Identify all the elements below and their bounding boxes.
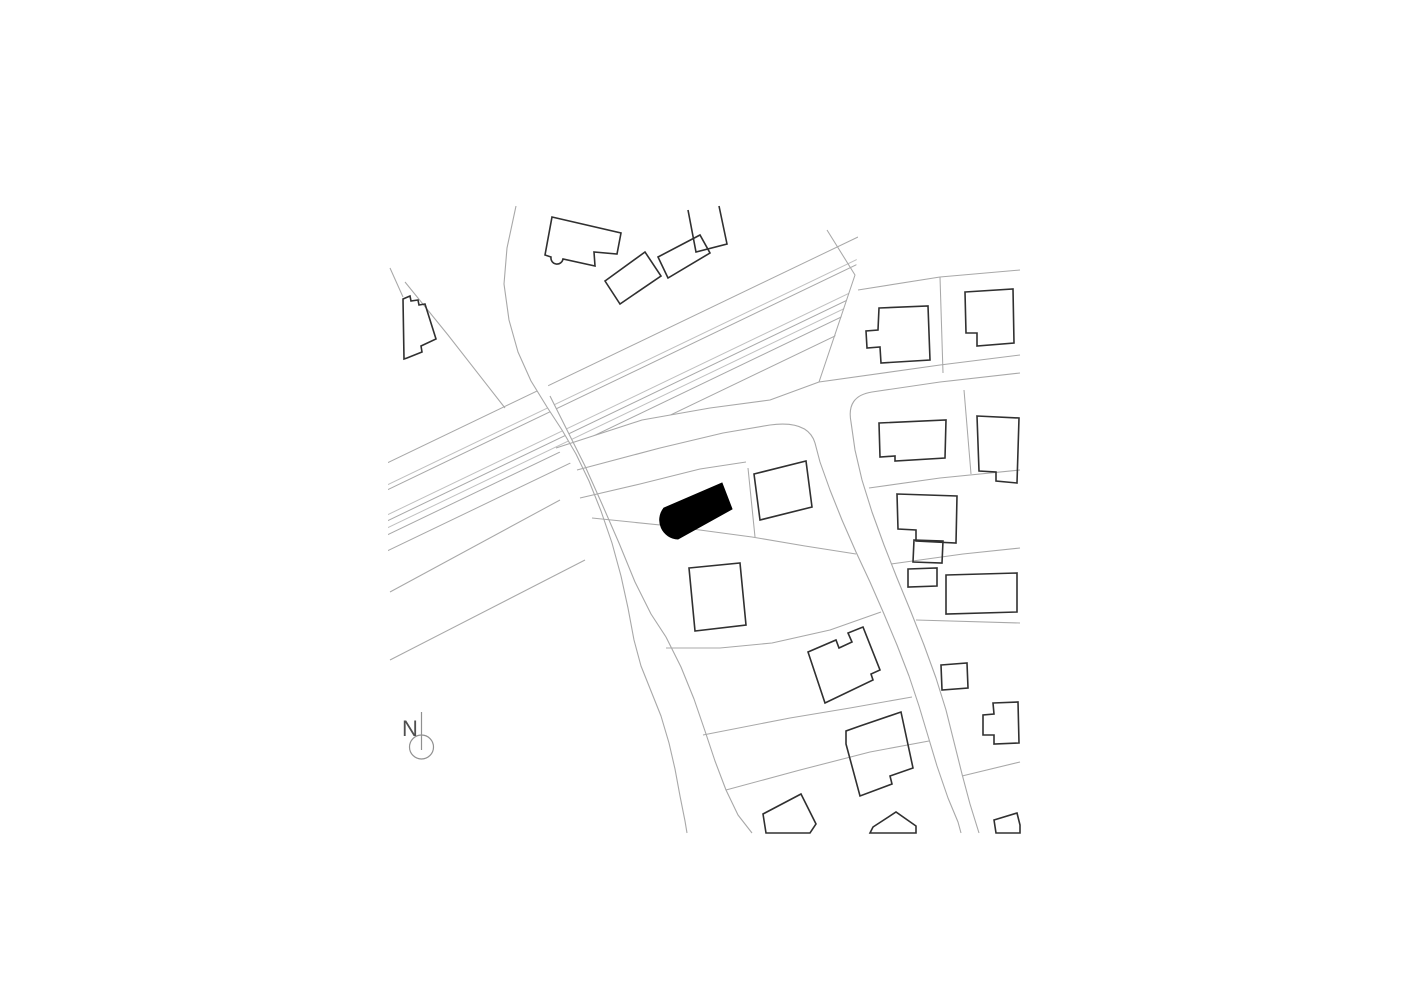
building-center-square-2 [689, 563, 746, 631]
parcel-boundary-line [869, 470, 1020, 488]
building-nw-rect-2 [658, 235, 710, 278]
parcel-boundary-line [891, 548, 1020, 564]
parcel-boundary-line [858, 270, 1020, 290]
site-plan: N [0, 0, 1415, 1000]
building-e-l-shape [897, 494, 957, 543]
parcel-boundary-line [962, 762, 1020, 776]
building-e-1 [879, 420, 946, 461]
parcel-boundary-line [390, 560, 585, 660]
building-nw-rect-1 [605, 252, 661, 304]
parcel-boundary-line [916, 620, 1020, 623]
parcel-boundary-line [726, 741, 929, 790]
building-se-bump [983, 702, 1019, 744]
parcel-boundary-line [752, 537, 856, 554]
site-building-highlight [660, 483, 732, 539]
building-e-2 [977, 416, 1019, 483]
building-bottom-partial-3 [994, 813, 1020, 833]
building-nw-large [545, 217, 621, 266]
north-indicator: N [402, 712, 434, 759]
road-surface [504, 206, 752, 833]
parcel-boundary-line [405, 282, 505, 408]
map-root [385, 206, 1020, 833]
building-bottom-partial-1 [763, 794, 816, 833]
building-se-small [941, 663, 968, 690]
building-center-square-1 [754, 461, 812, 520]
parcel-boundary-line [390, 500, 560, 592]
parcel-boundary-line [390, 268, 403, 297]
building-ne-1 [866, 306, 930, 363]
building-center-notched-2 [846, 712, 913, 796]
building-e-wide [946, 573, 1017, 614]
road-edge-line [850, 373, 1020, 833]
parcel-boundary-line [940, 277, 943, 373]
parcel-boundary-line [964, 390, 971, 474]
north-label: N [402, 716, 418, 741]
parcel-boundary-line [703, 697, 912, 735]
building-e-l-annex [913, 540, 943, 563]
building-west-stepped [403, 296, 436, 359]
building-e-small [908, 568, 937, 587]
building-center-notched-1 [808, 627, 880, 703]
page-background: N [0, 0, 1415, 1000]
building-bottom-partial-2 [870, 812, 916, 833]
building-ne-2 [965, 289, 1014, 346]
building-nw-open [688, 206, 727, 252]
